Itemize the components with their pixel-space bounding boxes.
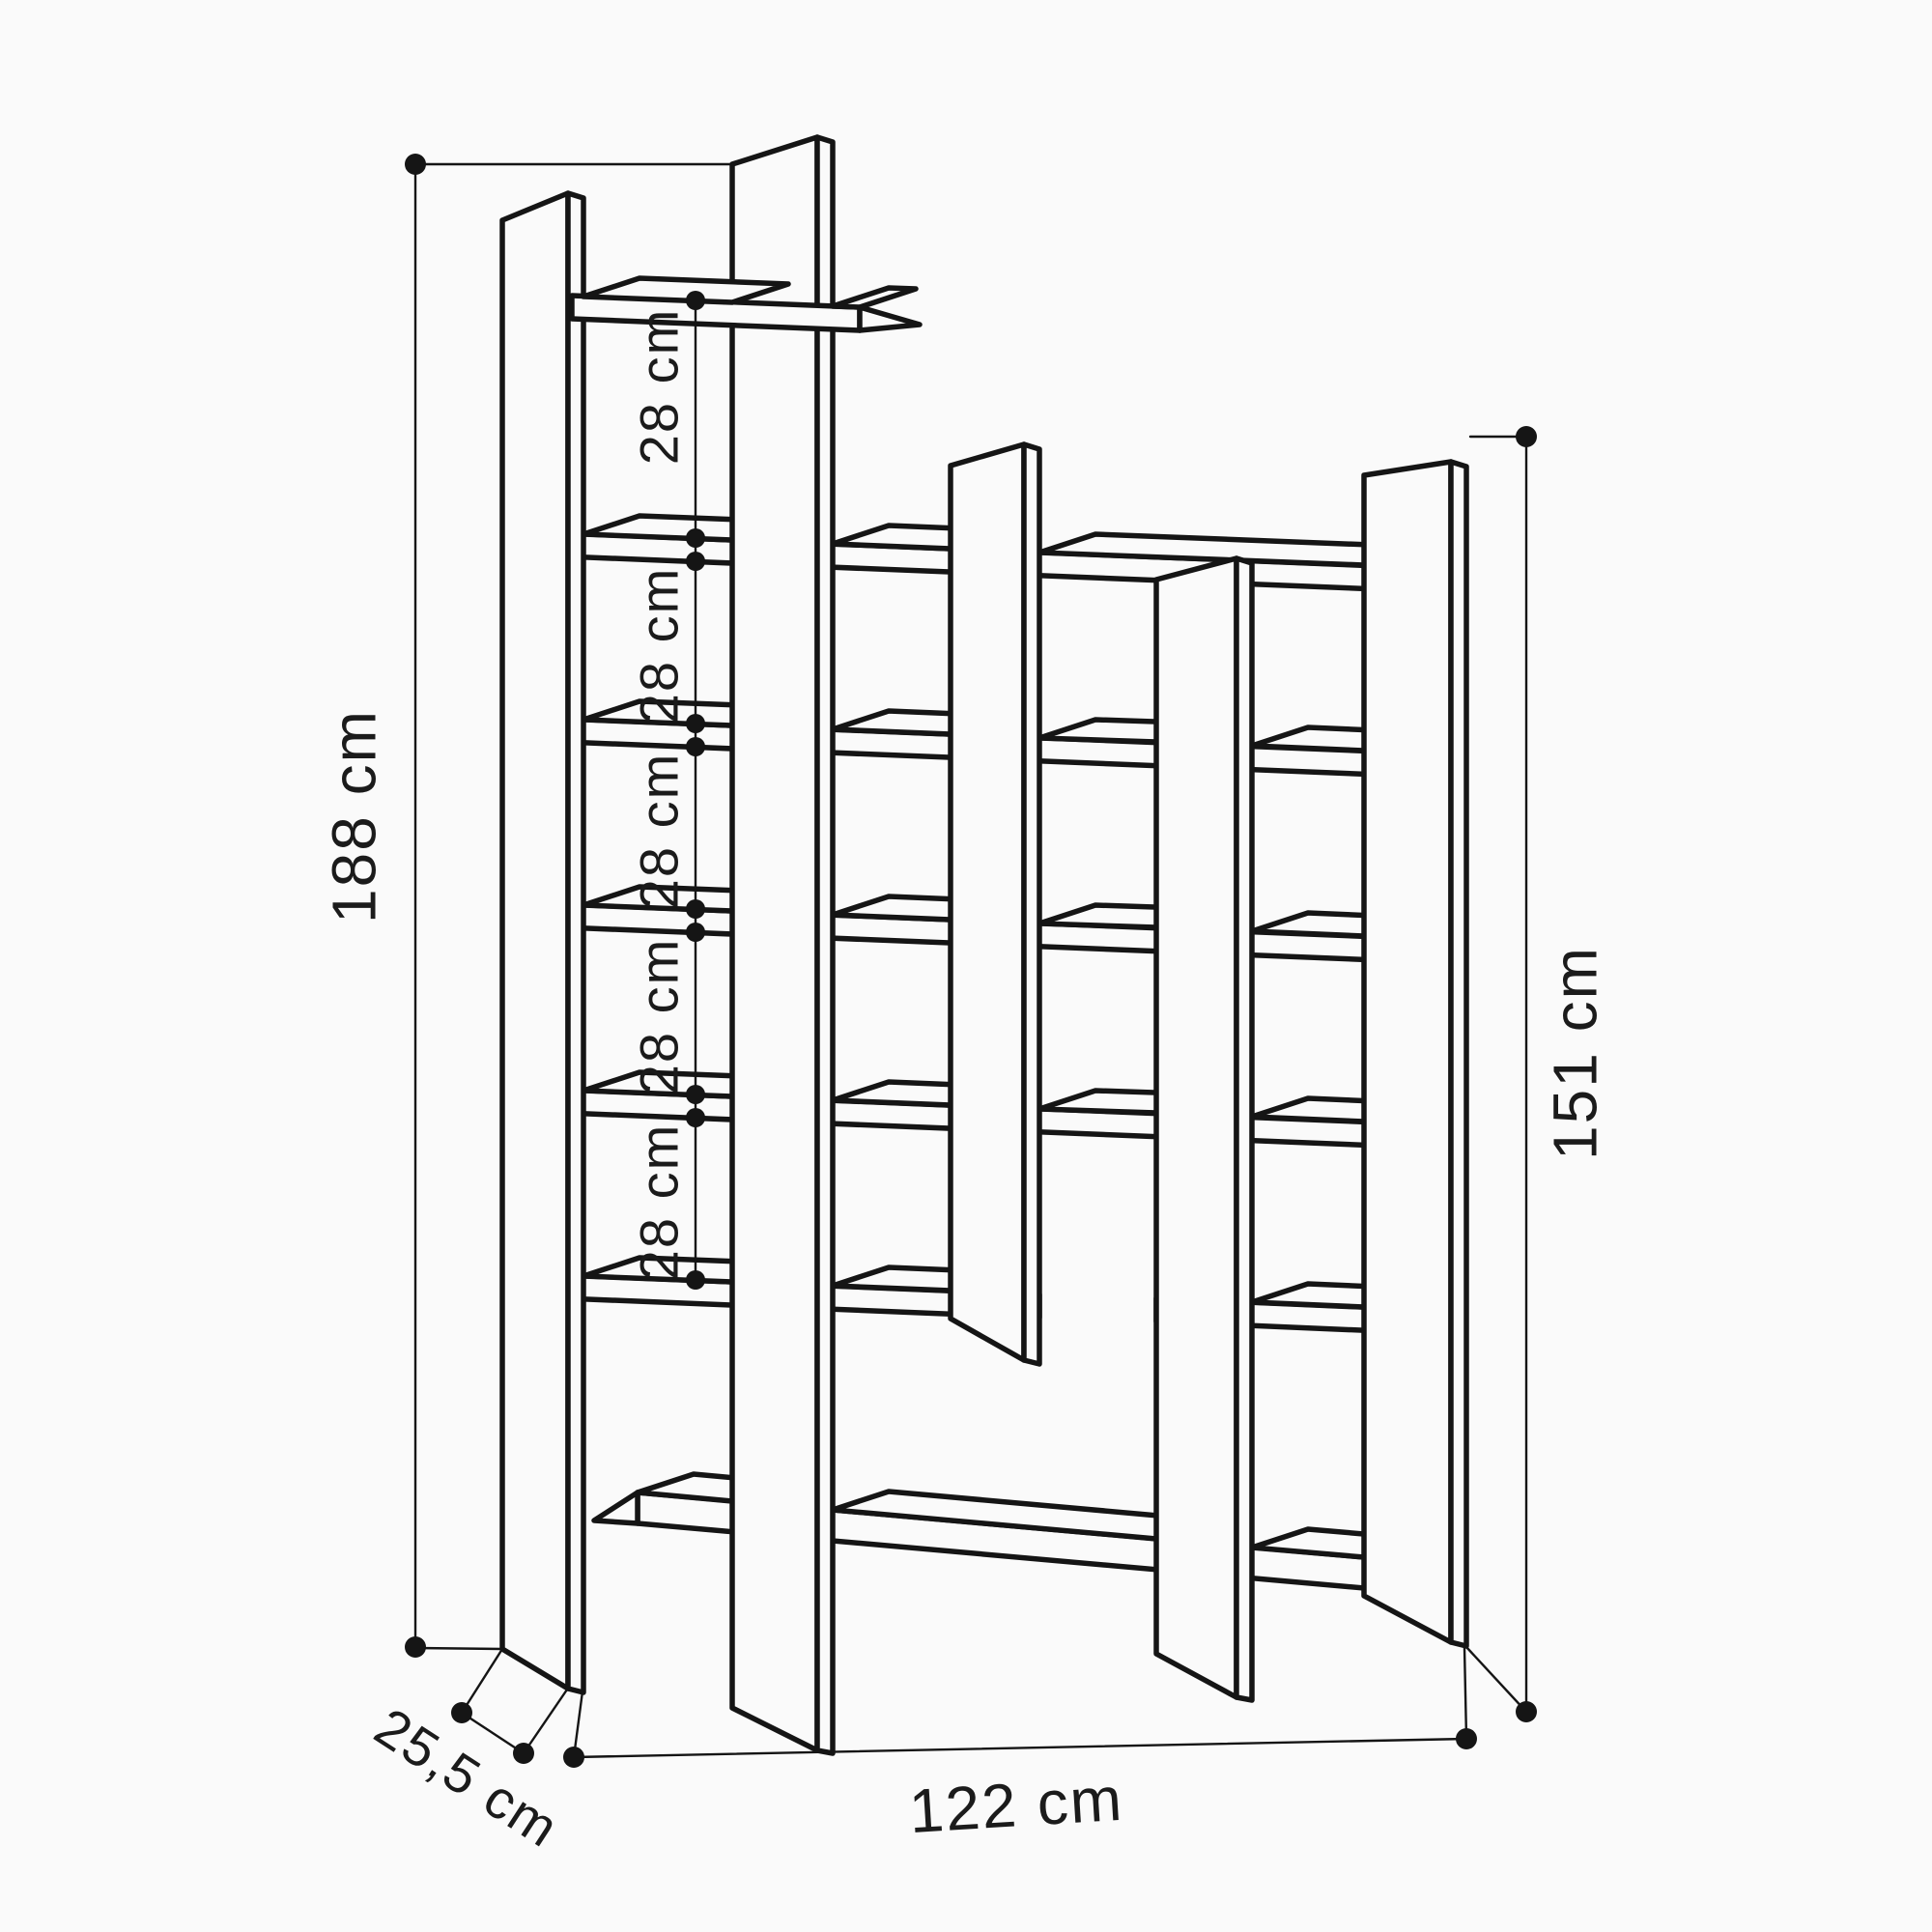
dim-label-gap-1: 28 cm xyxy=(629,308,690,466)
panel-left-side-edge xyxy=(568,193,583,1692)
panel-left-side xyxy=(502,193,568,1689)
panel-fourth-divider xyxy=(1156,558,1236,1697)
dim-width-line xyxy=(574,1648,1466,1757)
dim-height-right-line xyxy=(1466,437,1526,1712)
bottom-shelf-left-tip xyxy=(594,1492,638,1523)
dim-label-height-right: 151 cm xyxy=(1540,946,1609,1160)
panel-tall-center-side xyxy=(817,137,833,1753)
dim-label-gap-4: 28 cm xyxy=(629,938,690,1095)
panel-middle-divider-side xyxy=(1024,444,1039,1364)
dim-label-gap-2: 28 cm xyxy=(629,567,690,724)
dim-label-width: 122 cm xyxy=(907,1764,1125,1846)
top-shelf xyxy=(572,278,920,330)
dim-label-gap-5: 28 cm xyxy=(629,1123,690,1281)
top-shelf-right-tip xyxy=(860,307,920,330)
panel-right-side xyxy=(1364,462,1451,1642)
dim-label-height-left: 188 cm xyxy=(319,709,388,923)
panel-right-side-edge xyxy=(1451,462,1466,1646)
panel-fourth-divider-side xyxy=(1236,558,1252,1700)
panel-tall-center xyxy=(732,137,817,1750)
diagram-canvas: 188 cm 28 cm 28 cm 28 cm 28 cm 28 cm 151… xyxy=(0,0,1932,1932)
bookcase-dimension-diagram: 188 cm 28 cm 28 cm 28 cm 28 cm 28 cm 151… xyxy=(0,0,1932,1932)
dim-label-gap-3: 28 cm xyxy=(629,753,690,910)
panel-middle-divider xyxy=(951,444,1024,1360)
